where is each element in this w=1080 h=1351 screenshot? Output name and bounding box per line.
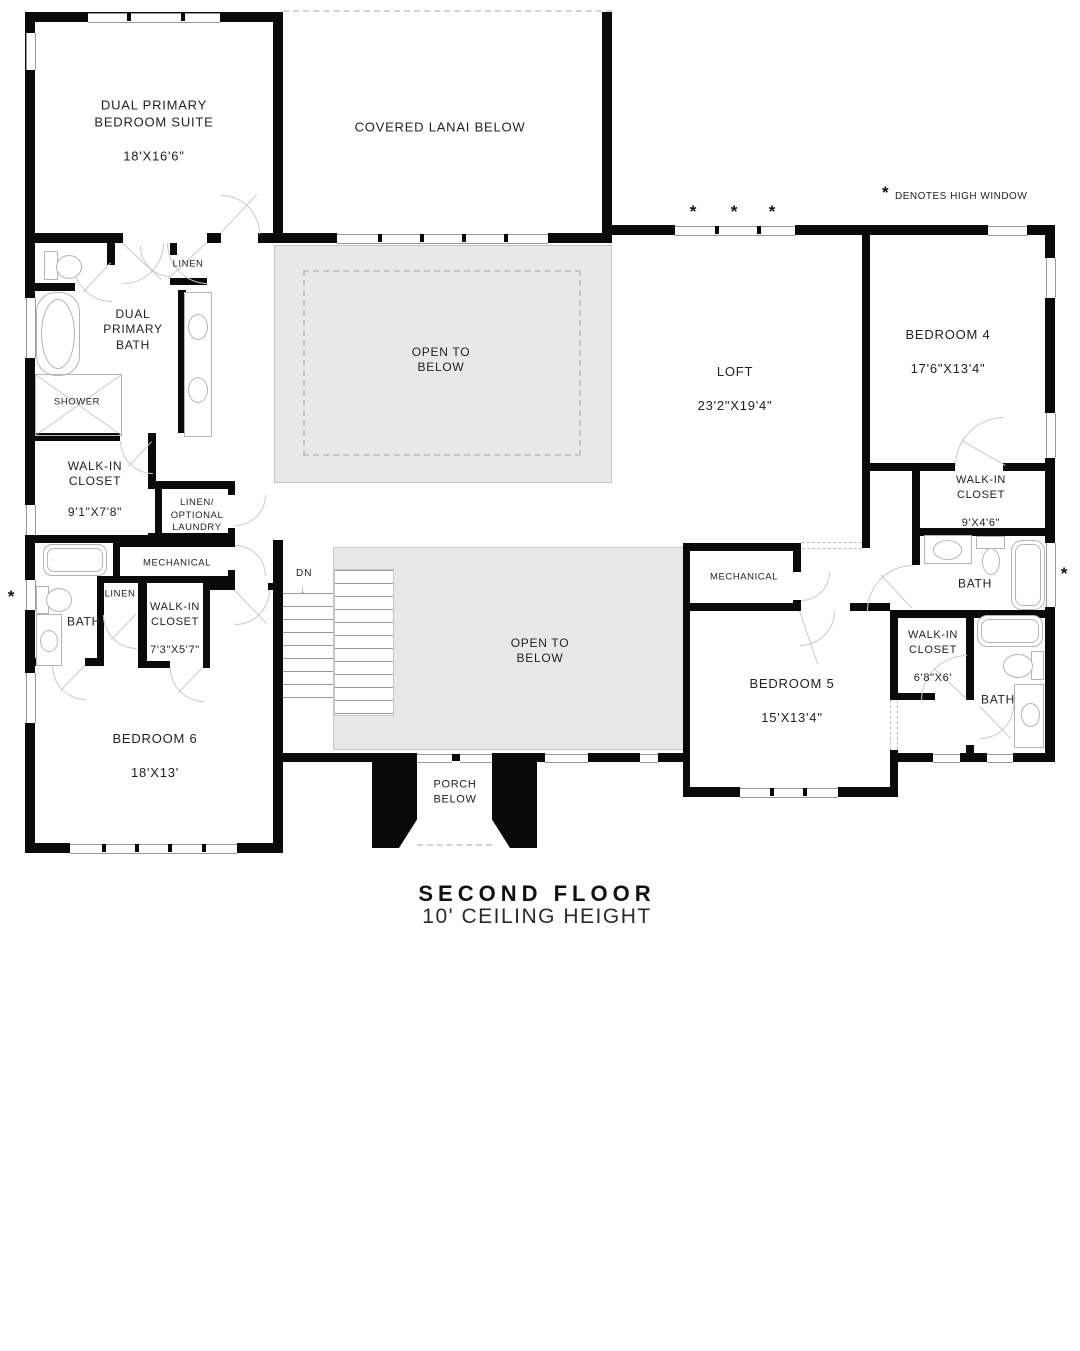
window [88,13,220,23]
porch-column [372,753,417,848]
room-name: WALK-IN CLOSET [150,600,200,629]
wall [960,753,987,762]
room-label-linen-hall: LINEN [105,576,136,613]
window-mullion [135,844,139,852]
window [1046,258,1056,298]
room-dims: 18'X16'6" [94,148,213,165]
window [70,844,237,854]
room-label-walk-in-closet-bedroom5: WALK-IN CLOSET 6'8"X6' [908,614,958,700]
wall [912,463,920,565]
room-name: OPEN TO BELOW [511,635,570,666]
room-label-walk-in-closet-bedroom6: WALK-IN CLOSET 7'3"X5'7" [150,586,200,672]
room-name: MECHANICAL [710,572,778,584]
wall [25,233,123,243]
window [1046,413,1056,458]
legend-text: DENOTES HIGH WINDOW [895,191,1027,202]
room-name: SHOWER [54,397,100,409]
window [337,234,548,244]
wall [1045,298,1055,413]
wall [602,12,612,243]
wall [1013,753,1055,762]
wall [155,489,162,533]
window [740,788,838,798]
window [640,754,658,763]
sink [40,630,58,652]
room-label-walk-in-closet-bedroom4: WALK-IN CLOSET 9'X4'6" [956,459,1006,545]
room-dims: 17'6"X13'4" [905,360,990,377]
wall [890,618,898,700]
wall [1003,463,1045,471]
wall [207,233,221,243]
window-mullion [202,844,206,852]
room-name: WALK-IN CLOSET [68,459,123,490]
wall [273,12,283,243]
room-name: WALK-IN CLOSET [908,628,958,657]
stairs-down-arrow-icon: ↓ [299,581,306,597]
wall [148,433,156,441]
window [417,754,452,763]
room-name: MECHANICAL [143,558,211,570]
room-name: DUAL PRIMARY BEDROOM SUITE [94,97,213,131]
room-label-dual-primary-suite: DUAL PRIMARY BEDROOM SUITE 18'X16'6" [94,80,213,181]
wall [283,753,372,762]
bathtub-inner [41,299,75,369]
window [26,673,36,723]
room-name: BEDROOM 6 [112,731,197,748]
high-window-asterisk: * [769,202,776,222]
window-mullion [452,754,460,761]
room-label-mechanical-right: MECHANICAL [710,559,778,596]
bathtub-inner [47,548,103,572]
sink [1021,703,1040,727]
sink [188,377,208,403]
window [933,754,960,763]
wall [268,583,283,590]
room-dims: 18'X13' [112,764,197,781]
wall [258,233,283,243]
window-high [26,580,36,610]
room-name: PORCH BELOW [433,778,476,807]
wall [795,225,988,235]
window-mullion [127,13,131,21]
wall [107,243,115,265]
porch-dashed-line [417,844,492,846]
room-label-bath-lower-right: BATH [981,677,1015,724]
bedroom5-cased-opening [890,700,898,750]
porch-column [492,753,537,848]
wall [548,233,612,243]
wall [138,576,147,668]
room-name: COVERED LANAI BELOW [355,120,526,137]
room-label-loft: LOFT 23'2"X19'4" [698,347,773,431]
room-label-mechanical-left: MECHANICAL [143,545,211,582]
room-label-linen-primary: LINEN [173,246,204,283]
wall [1045,607,1055,762]
wall [838,787,898,797]
door-arc [867,565,913,611]
room-label-covered-lanai: COVERED LANAI BELOW [355,103,526,154]
window-mullion [420,234,424,242]
wall [690,603,800,611]
room-label-bedroom-5: BEDROOM 5 15'X13'4" [749,659,834,743]
room-dims: 6'8"X6' [908,671,958,685]
wall [683,787,740,797]
room-name: DUAL PRIMARY BATH [103,307,163,354]
wall [898,753,933,762]
room-name: LINEN [105,589,136,601]
high-window-asterisk: * [8,587,15,607]
high-window-asterisk: * [1061,564,1068,584]
room-label-bedroom-4: BEDROOM 4 17'6"X13'4" [905,310,990,394]
wall [25,543,35,580]
toilet-bowl [56,255,82,279]
wall [537,753,545,762]
door-arc [801,572,830,601]
plan-title: SECOND FLOOR [418,881,655,907]
window [987,754,1013,763]
wall [25,843,70,853]
high-window-asterisk: * [731,202,738,222]
door-arc [235,545,266,576]
wall [793,551,801,572]
toilet-bowl [1003,654,1033,678]
stair-flight-right [334,569,394,716]
window-mullion [378,234,382,242]
wall [25,243,35,298]
wall [228,481,235,495]
room-label-open-to-below-upper: OPEN TO BELOW [412,329,471,391]
room-name: BATH [958,576,992,592]
bathtub-inner [981,619,1039,643]
room-label-bath-upper-right: BATH [958,561,992,608]
wall [35,283,75,291]
room-name: BEDROOM 4 [905,327,990,344]
window [545,754,588,763]
window [26,298,36,358]
room-name: WALK-IN CLOSET [956,473,1006,502]
wall [205,583,235,590]
room-name: BATH [67,614,101,630]
room-dims: 9'X4'6" [956,516,1006,530]
bathtub-inner [1015,544,1041,606]
window-mullion [757,226,761,234]
wall [683,543,690,797]
window-high [1046,543,1056,607]
wall [283,233,337,243]
room-dims: 23'2"X19'4" [698,397,773,414]
room-label-bath-left: BATH [67,599,101,646]
window-high [675,226,795,236]
room-label-open-to-below-lower: OPEN TO BELOW [511,620,570,682]
stair-flight-left [283,593,333,701]
wall [1045,225,1055,258]
window-mullion [803,788,807,796]
door-arc [221,195,260,234]
stairs-dn-label: DN [296,568,312,579]
plan-subtitle: 10' CEILING HEIGHT [422,905,651,929]
window [26,33,36,70]
window-mullion [102,844,106,852]
window [460,754,492,763]
room-dims: 15'X13'4" [749,709,834,726]
legend-asterisk: * [882,183,889,203]
room-name: BEDROOM 5 [749,676,834,693]
wall [25,723,35,853]
door-arc [170,668,204,702]
window-mullion [168,844,172,852]
room-label-walk-in-closet-primary: WALK-IN CLOSET 9'1"X7'8" [68,443,123,537]
room-label-dual-primary-bath: DUAL PRIMARY BATH [103,291,163,369]
wall [966,618,974,700]
window-mullion [770,788,774,796]
room-name: LOFT [698,364,773,381]
high-window-asterisk: * [690,202,697,222]
door-arc [103,615,137,649]
room-name: LINEN/ OPTIONAL LAUNDRY [171,497,224,534]
wall [862,225,870,548]
window-mullion [462,234,466,242]
room-name: BATH [981,692,1015,708]
window-mullion [715,226,719,234]
room-dims: 7'3"X5'7" [150,643,200,657]
wall [1045,458,1055,543]
loft-cased-opening [802,542,862,549]
sink [188,314,208,340]
room-name: LINEN [173,259,204,271]
room-label-linen-optional-laundry: LINEN/ OPTIONAL LAUNDRY [171,485,224,547]
room-name: OPEN TO BELOW [412,344,471,375]
door-arc [52,666,86,700]
wall [588,753,640,762]
room-label-porch-below: PORCH BELOW [433,763,476,820]
floor-plan: DN ↓ [0,0,1080,1351]
window-mullion [504,234,508,242]
room-dims: 9'1"X7'8" [68,506,123,522]
wall [85,658,104,666]
window [988,226,1027,236]
wall [25,358,35,505]
room-label-bedroom-6: BEDROOM 6 18'X13' [112,714,197,798]
lanai-roof-dashed-line [283,10,612,12]
room-label-shower: SHOWER [54,384,100,421]
door-arc [235,495,266,526]
window-mullion [181,13,185,21]
wall [683,543,801,551]
wall [612,225,675,235]
